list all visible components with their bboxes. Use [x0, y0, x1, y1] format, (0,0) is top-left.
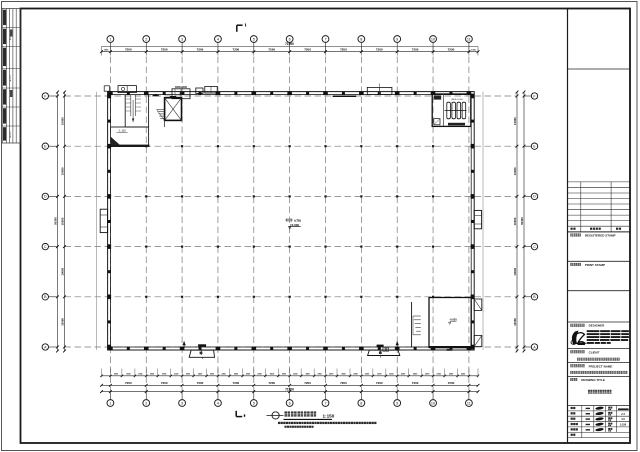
svg-text:10060: 10060 — [60, 117, 64, 125]
svg-text:2300: 2300 — [210, 373, 214, 375]
svg-text:2300: 2300 — [150, 373, 154, 375]
svg-text:3600: 3600 — [449, 373, 453, 375]
svg-text:9: 9 — [396, 37, 398, 41]
svg-text:7200: 7200 — [161, 48, 168, 52]
svg-text:3600: 3600 — [162, 373, 166, 375]
svg-text:DESIGNER: DESIGNER — [589, 324, 606, 328]
svg-text:71900: 71900 — [285, 387, 294, 391]
svg-text:7200: 7200 — [376, 381, 383, 385]
svg-text:PROJECT NAME: PROJECT NAME — [589, 364, 613, 368]
svg-text:2: 2 — [145, 401, 147, 405]
svg-text:7200: 7200 — [304, 48, 311, 52]
svg-text:10060: 10060 — [513, 318, 517, 326]
svg-text:3600: 3600 — [413, 373, 417, 375]
svg-text:4000+0.300: 4000+0.300 — [451, 99, 463, 101]
svg-text:1: 1 — [109, 401, 111, 405]
svg-text:2300: 2300 — [425, 373, 429, 375]
svg-text:7200: 7200 — [197, 48, 204, 52]
svg-text:10: 10 — [431, 401, 435, 405]
svg-text:2300: 2300 — [437, 373, 441, 375]
svg-text:11: 11 — [467, 401, 471, 405]
svg-text:2300: 2300 — [318, 373, 322, 375]
svg-text:3: 3 — [181, 37, 183, 41]
svg-text:7200: 7200 — [340, 48, 347, 52]
svg-text:2300: 2300 — [365, 373, 369, 375]
svg-text:3600: 3600 — [198, 373, 202, 375]
svg-text:50300: 50300 — [520, 217, 524, 225]
svg-text:-1.100: -1.100 — [118, 129, 126, 133]
svg-text:D: D — [533, 195, 536, 199]
svg-text:8: 8 — [360, 37, 362, 41]
svg-text:2300: 2300 — [222, 373, 226, 375]
svg-text:2300: 2300 — [246, 373, 250, 375]
svg-text:5: 5 — [253, 401, 255, 405]
svg-text:7200: 7200 — [125, 48, 132, 52]
svg-text:DRAWING TITLE: DRAWING TITLE — [581, 378, 605, 382]
svg-text:1: 1 — [109, 37, 111, 41]
svg-text:3600: 3600 — [306, 373, 310, 375]
svg-text:9: 9 — [396, 401, 398, 405]
svg-text:7200: 7200 — [233, 48, 240, 52]
svg-text:A 03 6: A 03 6 — [9, 131, 12, 138]
svg-text:10060: 10060 — [60, 167, 64, 175]
svg-text:1300: 1300 — [471, 50, 476, 52]
svg-text:10060: 10060 — [513, 167, 517, 175]
svg-text:3600: 3600 — [377, 373, 381, 375]
svg-text:PRINT STAMP: PRINT STAMP — [585, 263, 605, 267]
svg-text:3600: 3600 — [234, 373, 238, 375]
svg-text:2300: 2300 — [329, 373, 333, 375]
svg-text:2300: 2300 — [282, 373, 286, 375]
svg-text:2300: 2300 — [186, 373, 190, 375]
svg-text:7200: 7200 — [268, 381, 275, 385]
svg-text:7200: 7200 — [304, 381, 311, 385]
svg-text:7200: 7200 — [412, 48, 419, 52]
svg-text:2300: 2300 — [389, 373, 393, 375]
svg-text:7200: 7200 — [125, 381, 132, 385]
svg-text:4 6: 4 6 — [621, 418, 625, 421]
svg-text:10060: 10060 — [513, 117, 517, 125]
svg-text:10060: 10060 — [60, 267, 64, 275]
svg-text:7200: 7200 — [197, 381, 204, 385]
svg-text:1:150: 1:150 — [323, 413, 335, 418]
svg-text:4: 4 — [217, 37, 219, 41]
svg-text:2300: 2300 — [401, 373, 405, 375]
svg-text:4: 4 — [217, 401, 219, 405]
svg-text:11: 11 — [467, 37, 471, 41]
svg-text:7200: 7200 — [412, 381, 419, 385]
svg-text:C: C — [533, 245, 536, 249]
svg-text:7200: 7200 — [376, 48, 383, 52]
svg-text:7200: 7200 — [268, 48, 275, 52]
svg-text:8: 8 — [360, 401, 362, 405]
svg-text:REGISTERED STAMP: REGISTERED STAMP — [585, 234, 616, 238]
svg-text:2300: 2300 — [353, 373, 357, 375]
svg-text:2300: 2300 — [174, 373, 178, 375]
svg-text:2300: 2300 — [138, 373, 142, 375]
svg-text:3600: 3600 — [270, 373, 274, 375]
svg-text:2300: 2300 — [114, 373, 118, 375]
svg-text:2: 2 — [145, 37, 147, 41]
svg-text:C: C — [44, 245, 47, 249]
svg-text:3600: 3600 — [341, 373, 345, 375]
svg-text:2300: 2300 — [257, 373, 261, 375]
svg-text:2300: 2300 — [461, 373, 465, 375]
svg-text:10060: 10060 — [60, 318, 64, 326]
svg-text:A 03 6: A 03 6 — [9, 74, 12, 81]
svg-text:D: D — [44, 195, 47, 199]
svg-text:7200: 7200 — [233, 381, 240, 385]
svg-text:10060: 10060 — [513, 217, 517, 225]
svg-text:7200: 7200 — [448, 381, 455, 385]
svg-text:1300: 1300 — [104, 50, 109, 52]
svg-text:7200: 7200 — [448, 48, 455, 52]
svg-text:10060: 10060 — [60, 217, 64, 225]
svg-text:6: 6 — [289, 37, 291, 41]
svg-text:50300: 50300 — [53, 217, 57, 225]
svg-text:7: 7 — [324, 37, 326, 41]
svg-text:6: 6 — [289, 401, 291, 405]
svg-text:7200: 7200 — [340, 381, 347, 385]
svg-text:10: 10 — [431, 37, 435, 41]
svg-text:5: 5 — [253, 37, 255, 41]
svg-text:-0.020: -0.020 — [449, 318, 457, 322]
svg-text:3: 3 — [181, 401, 183, 405]
svg-text:2 3: 2 3 — [621, 413, 625, 416]
svg-text:3600: 3600 — [126, 373, 130, 375]
svg-text:7: 7 — [324, 401, 326, 405]
svg-text:7200: 7200 — [161, 381, 168, 385]
svg-text:2300: 2300 — [293, 373, 297, 375]
svg-text:10060: 10060 — [513, 267, 517, 275]
svg-text:1:150: 1:150 — [620, 424, 627, 427]
svg-text:±0.000: ±0.000 — [290, 223, 299, 227]
svg-text:CLIENT: CLIENT — [589, 350, 600, 354]
